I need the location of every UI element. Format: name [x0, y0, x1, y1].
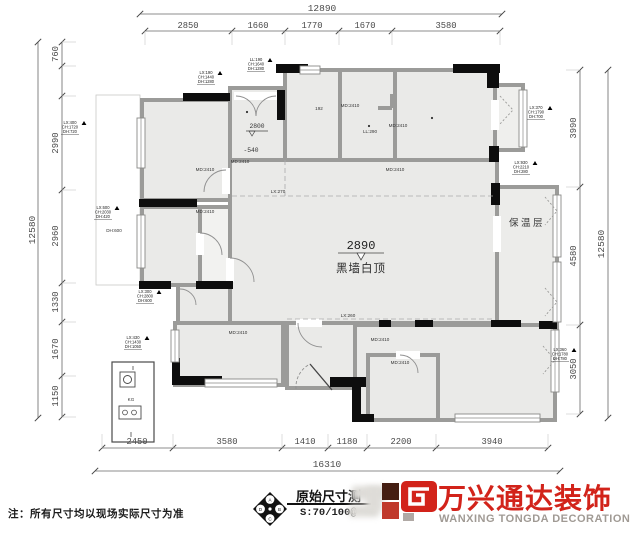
floorplan-page: 2850166017701670358012890245035801410118… [0, 0, 640, 535]
room-finish-label: 黑墙白顶 [336, 261, 386, 275]
up-arrow-icon [157, 290, 162, 294]
dim-label: 1660 [247, 21, 268, 31]
watermark-blur [366, 487, 382, 511]
door-window-label: MD:2410 [341, 103, 360, 108]
dim-label: 2200 [390, 437, 411, 447]
window-spec-label: DH:1280 [198, 79, 215, 84]
compass-letter: A [268, 497, 271, 502]
brand-name-en: WANXING TONGDA DECORATION [439, 513, 630, 525]
courtyard-outline [96, 95, 140, 285]
up-arrow-icon [145, 336, 150, 340]
dim-overall-label: 12580 [27, 215, 38, 244]
entry-level-label: -540 [243, 147, 258, 154]
door-window-label: MD:2410 [196, 209, 215, 214]
door-window-label: MD:2410 [231, 159, 250, 164]
electrical-panel [112, 362, 154, 442]
up-arrow-icon [82, 121, 87, 125]
up-arrow-icon [533, 161, 538, 165]
dim-label: 1180 [336, 437, 357, 447]
dim-label: 1410 [294, 437, 315, 447]
door-window-label: MD:2410 [371, 337, 390, 342]
dim-label: 4580 [569, 245, 579, 266]
window-spec-label: DH:780 [553, 356, 568, 361]
dim-label: 2990 [51, 132, 61, 153]
dim-label: 1770 [301, 21, 322, 31]
dim-overall-label: 12580 [596, 229, 607, 258]
window-spec-label: DH:1050 [125, 344, 142, 349]
floor-plan-svg: 2850166017701670358012890245035801410118… [0, 0, 640, 535]
dim-label: 3580 [435, 21, 456, 31]
dim-label: 1670 [51, 338, 61, 359]
up-arrow-icon [548, 106, 553, 110]
dim-label: 2850 [177, 21, 198, 31]
compass-icon: A B C D [252, 491, 288, 532]
dim-label: 3990 [569, 117, 579, 138]
dim-label: 1330 [51, 291, 61, 312]
ceiling-height-label: 2890 [347, 239, 376, 253]
window-spec-label: DH:600 [138, 298, 153, 303]
window-spec-label: DH:720 [63, 129, 78, 134]
entry-level-label: 2800 [249, 123, 264, 130]
up-arrow-icon [268, 58, 273, 62]
door-window-label: MD:2410 [386, 167, 405, 172]
dim-label: 1150 [51, 385, 61, 406]
door-window-label: DH:600 [106, 228, 122, 233]
dim-label: 3050 [569, 358, 579, 379]
window-spec-label: DH:420 [96, 214, 111, 219]
door-window-label: LL:290 [363, 129, 377, 134]
dim-label: 2960 [51, 225, 61, 246]
door-window-label: LX:260 [341, 313, 356, 318]
door-window-label: MD:2410 [196, 167, 215, 172]
panel-label: KG [128, 397, 135, 402]
up-arrow-icon [115, 206, 120, 210]
door-window-label: MD:2410 [389, 123, 408, 128]
dim-overall-label: 16310 [313, 459, 342, 470]
site-note: 注：所有尺寸均以现场实际尺寸为准 [8, 506, 184, 521]
dim-label: 1670 [354, 21, 375, 31]
window-spec-label: DH:280 [514, 169, 529, 174]
up-arrow-icon [218, 71, 223, 75]
compass-letter: B [278, 507, 281, 512]
door-window-label: MD:2410 [229, 330, 248, 335]
door-window-label: 192 [315, 106, 323, 111]
dim-label: 2450 [126, 437, 147, 447]
dim-overall-label: 12890 [308, 3, 337, 14]
door-window-label: LX:270 [271, 189, 286, 194]
dim-label: 760 [51, 46, 61, 62]
brand-logo-icon [382, 480, 438, 527]
window-spec-label: DH:1280 [248, 66, 265, 71]
brand-name-cn: 万兴通达装饰 [438, 477, 612, 517]
insulation-label: 保温层 [509, 217, 545, 229]
dim-label: 3580 [216, 437, 237, 447]
up-arrow-icon [572, 348, 577, 352]
door-window-label: MD:2410 [391, 360, 410, 365]
window-spec-label: DH:700 [529, 114, 544, 119]
dim-label: 3940 [481, 437, 502, 447]
